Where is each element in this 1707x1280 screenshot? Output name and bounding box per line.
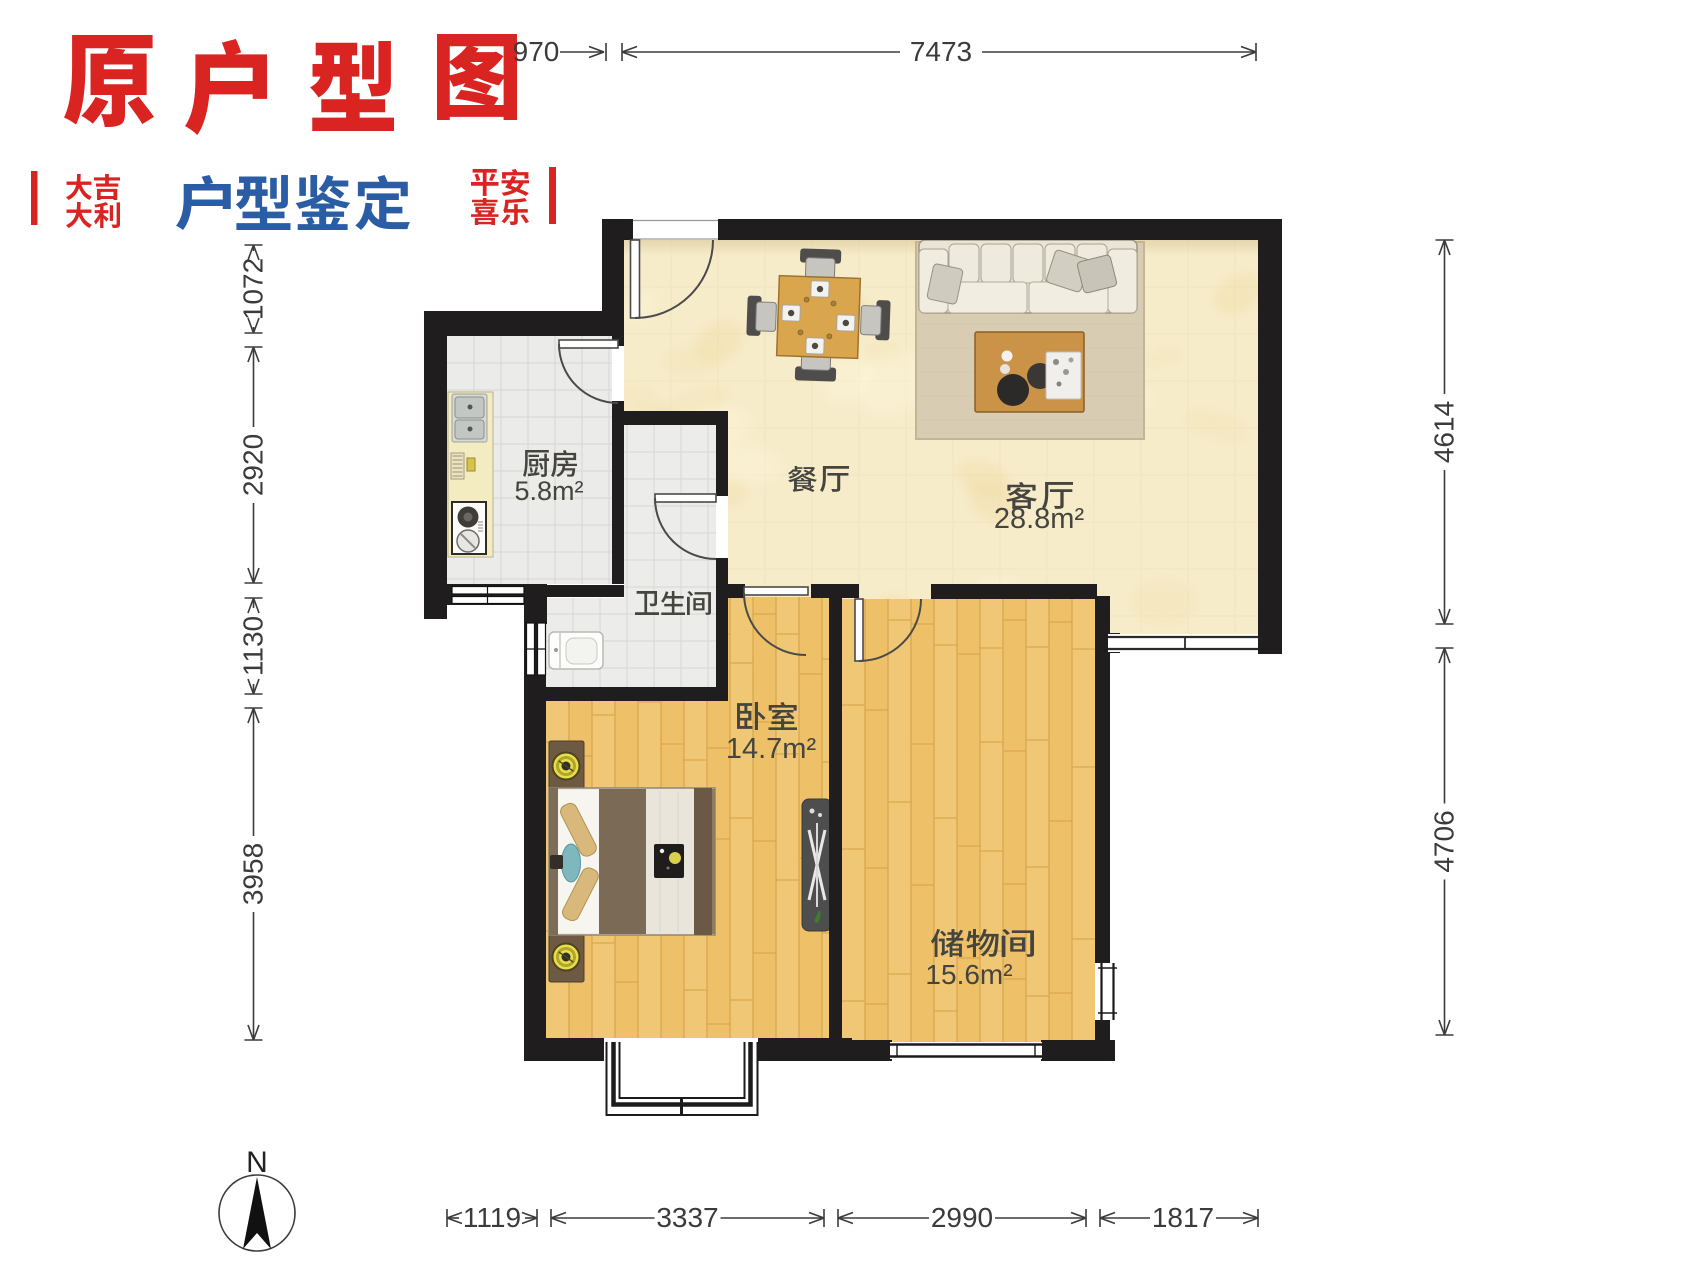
svg-text:2920: 2920 (238, 434, 269, 496)
svg-text:5.8m²: 5.8m² (514, 476, 583, 506)
svg-text:3337: 3337 (656, 1202, 718, 1233)
svg-text:15.6m²: 15.6m² (925, 959, 1012, 990)
svg-text:1130: 1130 (238, 616, 269, 676)
svg-text:970: 970 (513, 36, 560, 67)
svg-text:4706: 4706 (1429, 810, 1460, 872)
svg-text:14.7m²: 14.7m² (726, 733, 817, 765)
svg-text:N: N (246, 1146, 268, 1179)
svg-text:1817: 1817 (1152, 1202, 1214, 1233)
svg-text:1072: 1072 (238, 258, 269, 320)
svg-text:28.8m²: 28.8m² (994, 503, 1085, 535)
svg-text:7473: 7473 (910, 36, 972, 67)
svg-text:3958: 3958 (238, 843, 269, 905)
svg-text:4614: 4614 (1429, 401, 1460, 463)
svg-text:2990: 2990 (931, 1202, 993, 1233)
svg-text:1119: 1119 (463, 1202, 521, 1233)
